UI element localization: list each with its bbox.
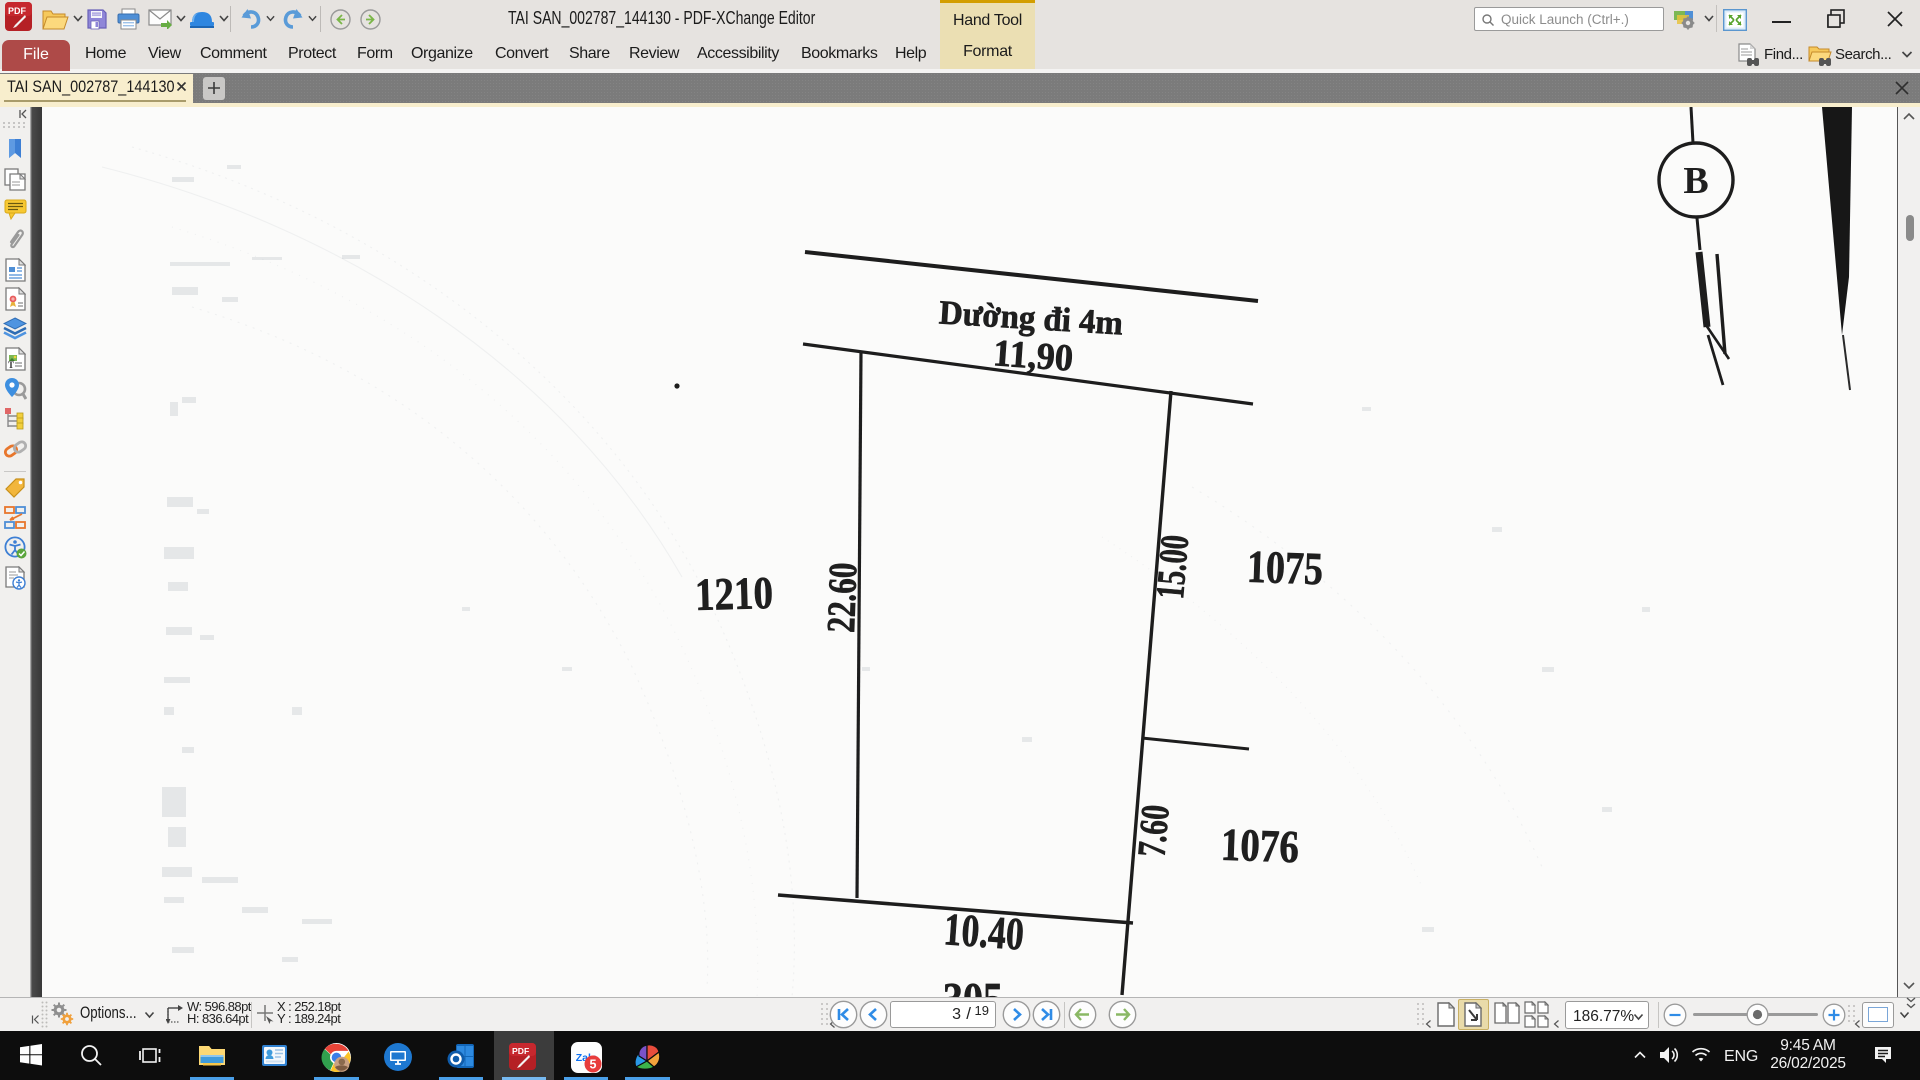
svg-text:15.00: 15.00 xyxy=(1147,533,1197,601)
svg-text:5: 5 xyxy=(590,1058,597,1072)
svg-text:305: 305 xyxy=(943,973,1003,997)
svg-text:B: B xyxy=(1683,160,1708,202)
svg-text:10.40: 10.40 xyxy=(942,903,1025,959)
svg-text:22.60: 22.60 xyxy=(818,562,865,634)
svg-text:PDF: PDF xyxy=(512,1046,529,1056)
svg-text:T: T xyxy=(8,360,14,370)
svg-text:7.60: 7.60 xyxy=(1128,803,1177,859)
svg-text:1076: 1076 xyxy=(1220,819,1300,873)
svg-text:1075: 1075 xyxy=(1246,541,1324,595)
svg-text:1210: 1210 xyxy=(694,567,773,620)
svg-text:11,90: 11,90 xyxy=(992,332,1075,379)
svg-text:PDF: PDF xyxy=(8,6,27,16)
